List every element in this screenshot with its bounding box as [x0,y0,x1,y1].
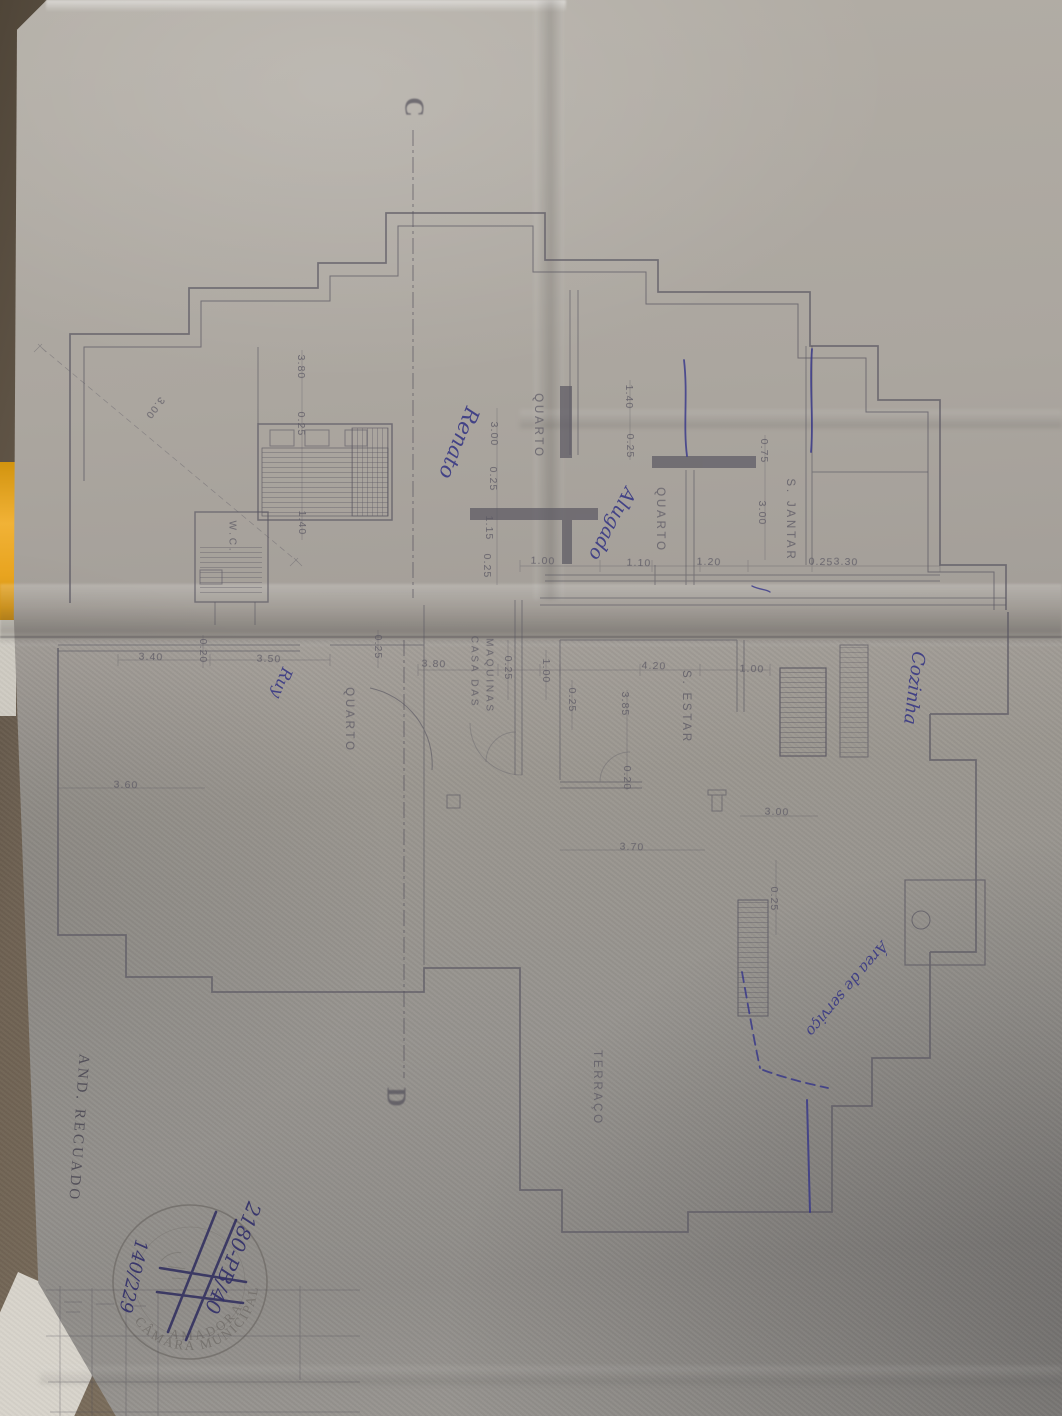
section-line-cd [404,130,413,1078]
dim-label: 4.20 [641,660,666,673]
room-label-quarto-mid: QUARTO [654,487,666,553]
dim-label: 0.25 [808,556,833,569]
room-label-sala-estar: S. ESTAR [680,670,692,744]
dim-label: 0.25 [295,412,307,437]
dim-label: 1.40 [296,511,308,536]
room-label-casa-maquinas-2: MAQUINAS [484,638,495,714]
dim-label: 3.00 [756,501,768,526]
dim-label: 0.25 [481,554,493,579]
dim-label: 0.25 [487,467,499,492]
dim-label: 3.00 [488,422,500,447]
dim-label: 1.40 [623,385,635,410]
svg-text:CÂMARA MUNICIPAL: CÂMARA MUNICIPAL [130,1259,277,1378]
dim-label: 1.00 [530,555,555,568]
room-label-sala-jantar: S. JANTAR [784,478,796,561]
room-label-wc: W.C. [227,521,238,554]
dim-label: 1.00 [739,663,764,676]
dim-label: 0.25 [768,887,780,912]
interior-walls [58,290,1006,965]
dim-label: 1.00 [540,659,552,684]
dim-label: 3.00 [764,806,789,819]
section-marker-c: C [399,97,430,117]
room-label-quarto-lower: QUARTO [343,687,355,753]
dim-label: 3.85 [619,692,631,717]
dim-label: 0.20 [621,766,633,791]
dim-label: 1.15 [483,516,495,541]
dim-label: 3.70 [619,841,644,854]
dim-label: 3.80 [295,355,307,380]
section-marker-d: D [381,1087,412,1107]
photo-of-floor-plan-document: CÂMARA MUNICIPAL AMADORA C D QUARTO QUAR… [0,0,1062,1416]
dim-label: 0.75 [758,439,770,464]
dim-label: 0.25 [566,688,578,713]
dim-label: 1.10 [626,557,651,570]
dim-label: 0.25 [502,656,514,681]
dim-label: 0.25 [624,434,636,459]
dim-label: 1.20 [696,556,721,569]
dim-label: 3.40 [138,651,163,664]
dim-label: 3.60 [113,779,138,792]
dim-label: 3.80 [421,658,446,671]
dim-label: 0.20 [197,639,209,664]
stamp-arc-top-text: CÂMARA MUNICIPAL [130,1259,277,1378]
dim-label: 0.25 [372,635,384,660]
dim-label: 3.30 [833,556,858,569]
room-label-quarto-upper: QUARTO [532,393,544,459]
room-label-terraco: TERRAÇO [591,1050,603,1126]
dim-label: 3.50 [256,653,281,666]
room-label-casa-maquinas-1: CASA DAS [469,636,480,708]
